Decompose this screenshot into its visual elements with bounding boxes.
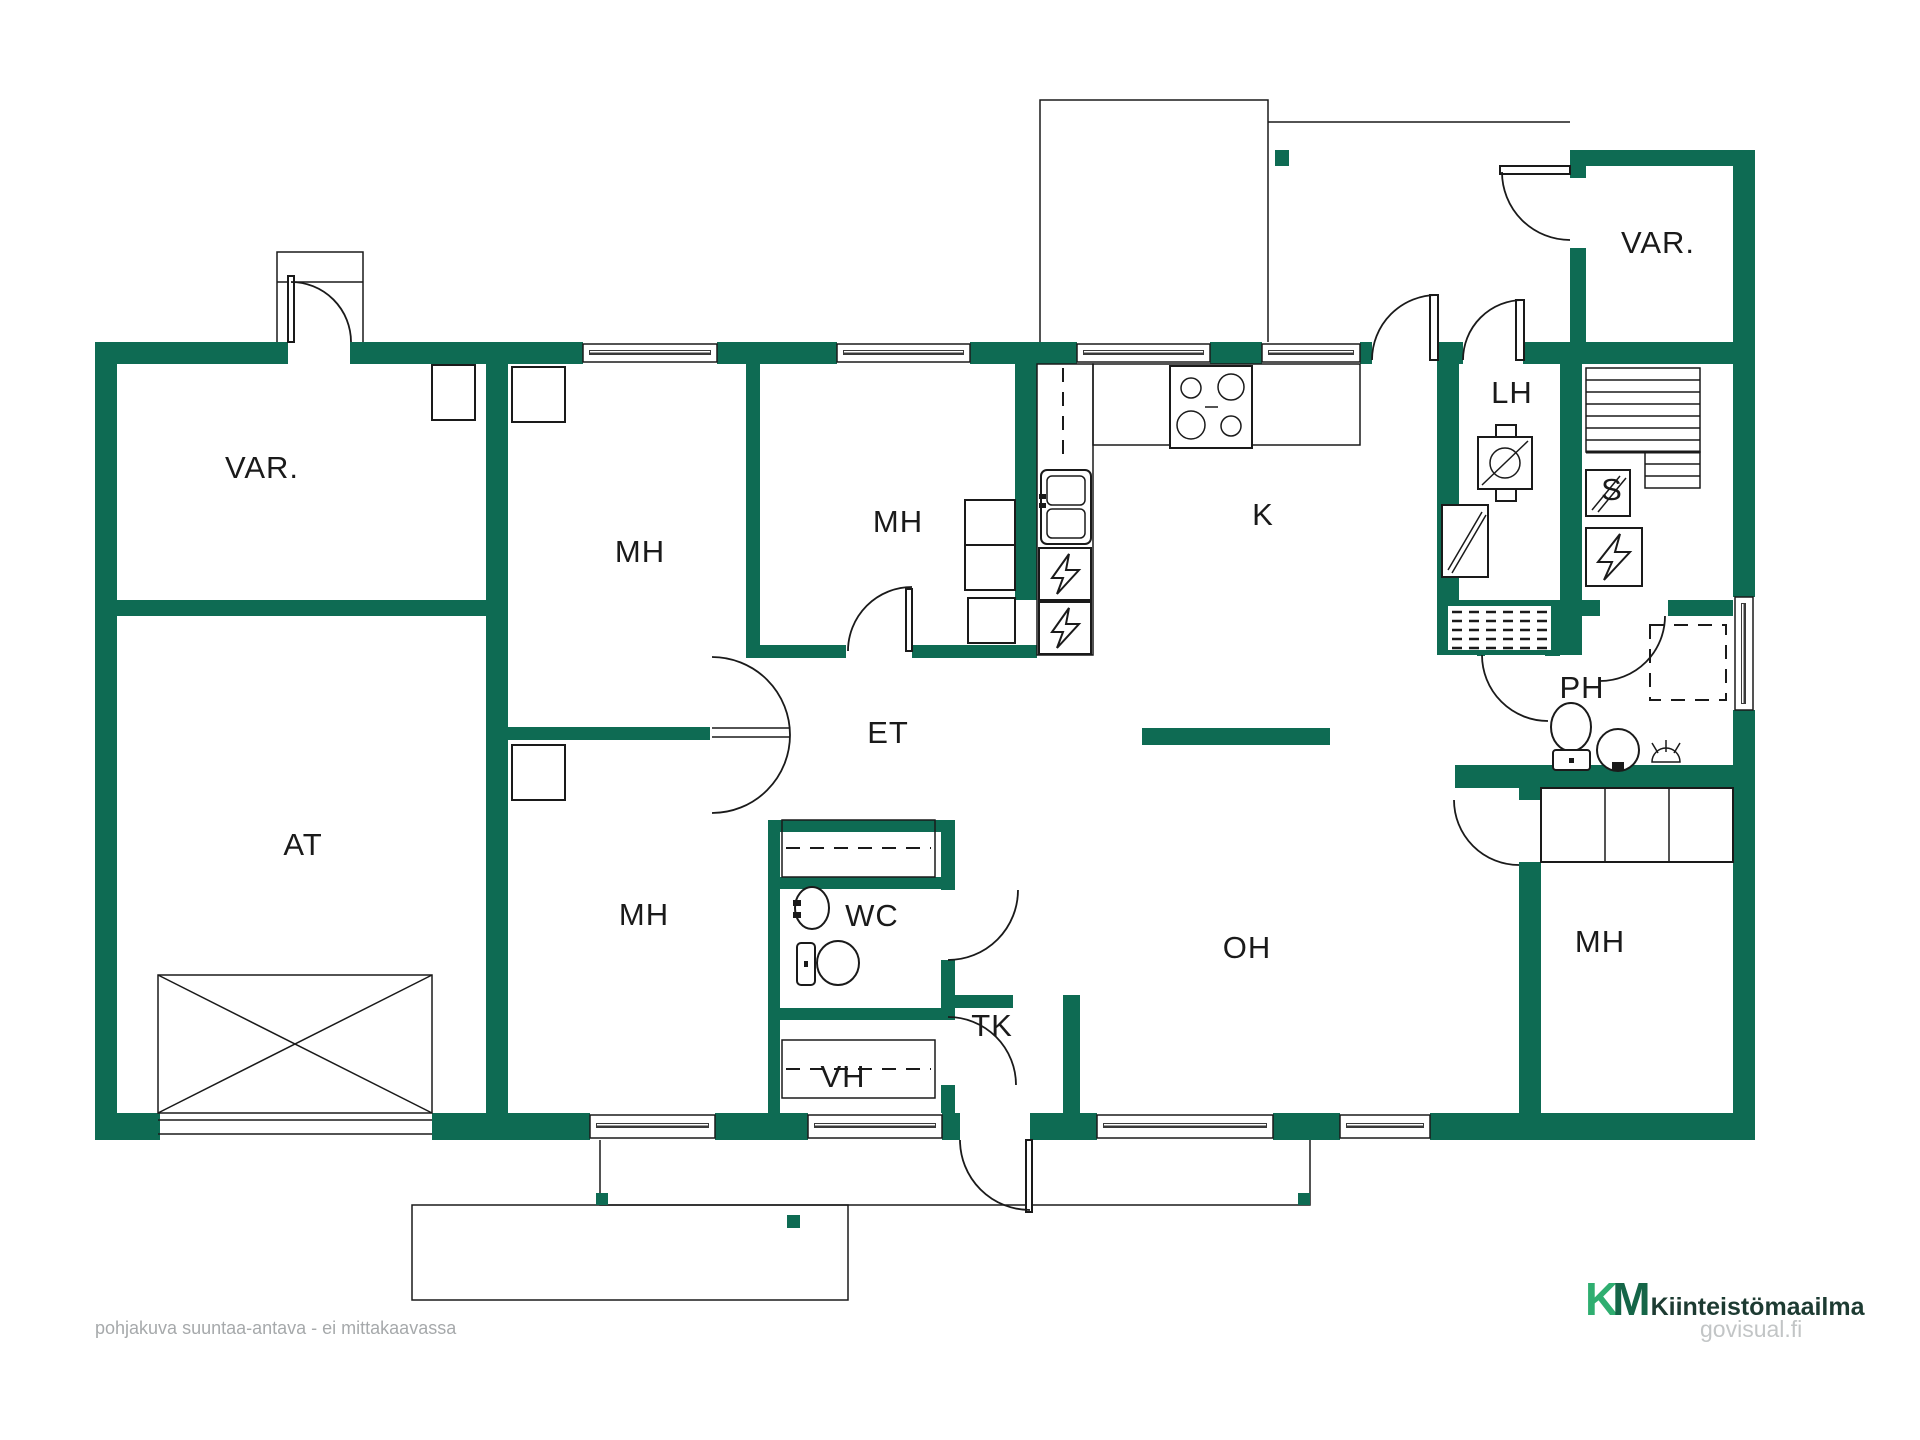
- floor-plan-drawing: [0, 0, 1920, 1440]
- door-arc-icon: [288, 276, 351, 342]
- door-arc-icon: [960, 1140, 1032, 1212]
- room-label-mh-top-center: MH: [873, 504, 923, 540]
- boiler-icon: [1478, 425, 1532, 501]
- shower-icon: [1652, 740, 1680, 762]
- drying-rack-icon: [1448, 606, 1551, 650]
- terrace-outline: [1040, 100, 1570, 342]
- window-icon: [1735, 597, 1753, 710]
- washbasin-icon: [793, 887, 829, 929]
- room-label-s: S: [1601, 472, 1623, 508]
- room-label-tk: TK: [971, 1008, 1013, 1044]
- terrace-post: [1275, 150, 1289, 166]
- wardrobe-icon: [1541, 788, 1733, 862]
- stove-icon: [1170, 366, 1252, 448]
- room-label-vh: VH: [820, 1059, 865, 1095]
- porch-post: [1298, 1193, 1310, 1205]
- door-arc-icon: [1482, 655, 1548, 721]
- room-label-k: K: [1252, 497, 1274, 533]
- room-label-lh: LH: [1491, 375, 1533, 411]
- porch-post: [787, 1215, 800, 1228]
- room-label-wc: WC: [845, 898, 899, 934]
- sauna-stove-icon: [1586, 528, 1642, 586]
- window-icon: [1097, 1115, 1273, 1138]
- garage-door-icon: [158, 975, 432, 1134]
- room-label-mh-top-left: MH: [615, 534, 665, 570]
- room-label-et: ET: [867, 715, 909, 751]
- chimney-box: [432, 365, 475, 420]
- toilet-icon: [1551, 703, 1591, 770]
- door-arc-icon: [1454, 800, 1519, 865]
- glass-panel-icon: [1442, 505, 1488, 577]
- room-label-ph: PH: [1559, 670, 1604, 706]
- room-label-oh: OH: [1223, 930, 1272, 966]
- floor-plan-page: VAR.ATMHMHKLHVAR.SPHETWCMHOHMHTKVH pohja…: [0, 0, 1920, 1440]
- window-icon: [1077, 344, 1210, 362]
- room-label-at: AT: [283, 827, 322, 863]
- logo-m-icon: M: [1612, 1272, 1648, 1326]
- door-arc-icon: [948, 890, 1018, 960]
- window-icon: [808, 1115, 942, 1138]
- entrance-porch-outline: [412, 1140, 1310, 1300]
- door-arc-icon: [1463, 300, 1524, 360]
- room-label-var-right: VAR.: [1621, 225, 1695, 261]
- window-icon: [583, 344, 717, 362]
- door-arc-icon: [848, 587, 912, 651]
- room-label-mh-right: MH: [1575, 924, 1625, 960]
- freezer-icon: [1039, 602, 1091, 654]
- window-icon: [1340, 1115, 1430, 1138]
- toilet-icon: [797, 941, 859, 985]
- room-label-var-left: VAR.: [225, 450, 299, 486]
- room-label-mh-bottom-left: MH: [619, 897, 669, 933]
- disclaimer-text: pohjakuva suuntaa-antava - ei mittakaava…: [95, 1318, 456, 1339]
- wardrobe-icon: [965, 500, 1015, 643]
- fridge-icon: [1039, 548, 1091, 600]
- wardrobe-icon: [512, 367, 565, 422]
- window-icon: [837, 344, 970, 362]
- door-arc-icon: [1500, 166, 1570, 240]
- window-icon: [590, 1115, 715, 1138]
- porch-post: [596, 1193, 608, 1205]
- wardrobe-icon: [512, 745, 565, 800]
- kitchen-sink-icon: [1039, 470, 1091, 544]
- govisual-link: govisual.fi: [1700, 1316, 1802, 1343]
- door-arc-icon: [1372, 295, 1438, 360]
- washbasin-icon: [1597, 729, 1639, 771]
- window-icon: [1262, 344, 1360, 362]
- door-arc-icon: [712, 657, 790, 813]
